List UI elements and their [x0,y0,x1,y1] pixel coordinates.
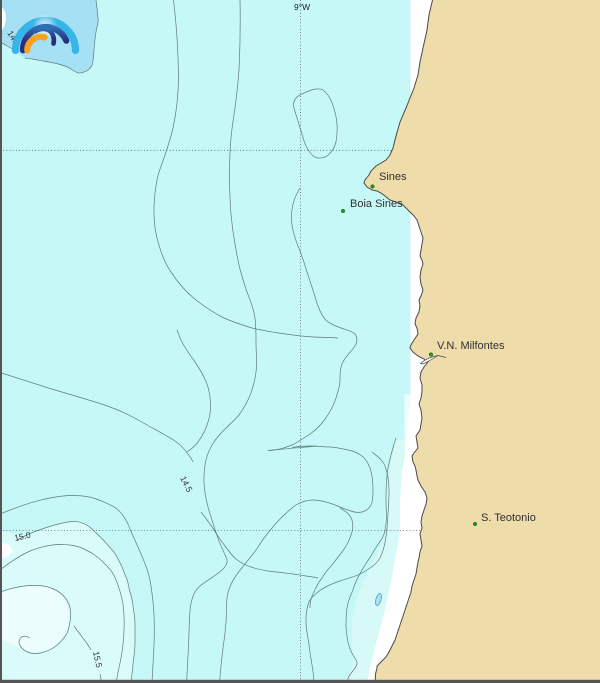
svg-text:Sines: Sines [379,171,407,183]
svg-text:9°W: 9°W [294,2,310,12]
svg-text:S. Teotonio: S. Teotonio [481,512,536,524]
svg-text:V.N. Milfontes: V.N. Milfontes [437,340,505,352]
svg-text:Boia Sines: Boia Sines [350,198,403,210]
